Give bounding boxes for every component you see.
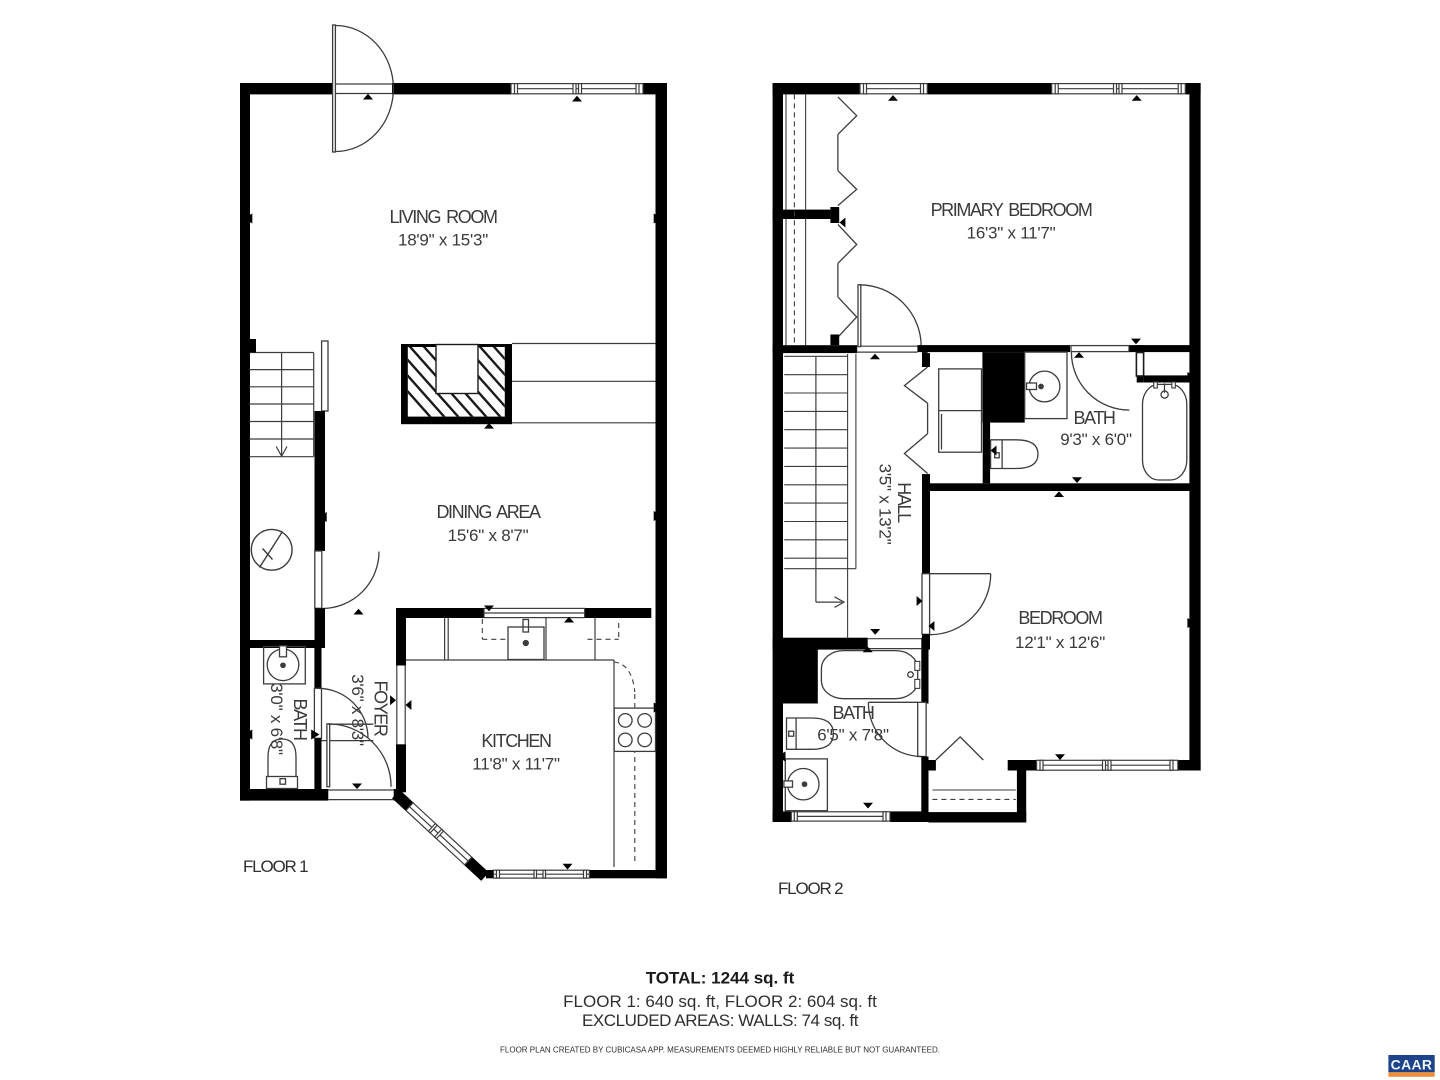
svg-text:FLOOR 1: FLOOR 1 bbox=[243, 857, 308, 876]
svg-text:BATH: BATH bbox=[290, 698, 310, 739]
svg-text:FLOOR 2: FLOOR 2 bbox=[778, 879, 843, 898]
svg-text:EXCLUDED AREAS: WALLS: 74 sq.: EXCLUDED AREAS: WALLS: 74 sq. ft bbox=[582, 1011, 859, 1030]
svg-text:12'1" x 12'6": 12'1" x 12'6" bbox=[1015, 633, 1105, 652]
svg-text:BEDROOM: BEDROOM bbox=[1018, 608, 1102, 628]
svg-text:6'5" x 7'8": 6'5" x 7'8" bbox=[817, 726, 889, 745]
svg-text:3'5" x 13'2": 3'5" x 13'2" bbox=[876, 464, 895, 545]
svg-text:15'6" x 8'7": 15'6" x 8'7" bbox=[448, 526, 529, 545]
svg-text:16'3" x 11'7": 16'3" x 11'7" bbox=[967, 224, 1056, 243]
svg-text:BATH: BATH bbox=[832, 703, 873, 723]
svg-text:FOYER: FOYER bbox=[371, 680, 391, 736]
svg-text:LIVING ROOM: LIVING ROOM bbox=[389, 207, 497, 227]
svg-text:BATH: BATH bbox=[1073, 408, 1114, 428]
svg-text:18'9" x 15'3": 18'9" x 15'3" bbox=[398, 231, 488, 250]
svg-text:KITCHEN: KITCHEN bbox=[481, 731, 551, 751]
svg-text:FLOOR PLAN CREATED BY CUBICASA: FLOOR PLAN CREATED BY CUBICASA APP. MEAS… bbox=[500, 1046, 940, 1055]
svg-text:PRIMARY BEDROOM: PRIMARY BEDROOM bbox=[931, 200, 1092, 220]
svg-text:TOTAL: 1244 sq. ft: TOTAL: 1244 sq. ft bbox=[646, 969, 795, 988]
svg-text:3'6" x 8'3": 3'6" x 8'3" bbox=[348, 674, 367, 746]
svg-text:DINING AREA: DINING AREA bbox=[436, 502, 541, 522]
svg-text:3'0" x 6'8": 3'0" x 6'8" bbox=[267, 683, 286, 755]
svg-text:CAAR: CAAR bbox=[1391, 1057, 1433, 1073]
svg-text:HALL: HALL bbox=[894, 482, 914, 523]
svg-text:9'3" x 6'0": 9'3" x 6'0" bbox=[1060, 430, 1132, 449]
svg-text:FLOOR 1: 640 sq. ft, FLOOR 2:: FLOOR 1: 640 sq. ft, FLOOR 2: 604 sq. ft bbox=[563, 992, 877, 1011]
svg-text:11'8" x 11'7": 11'8" x 11'7" bbox=[472, 755, 560, 774]
